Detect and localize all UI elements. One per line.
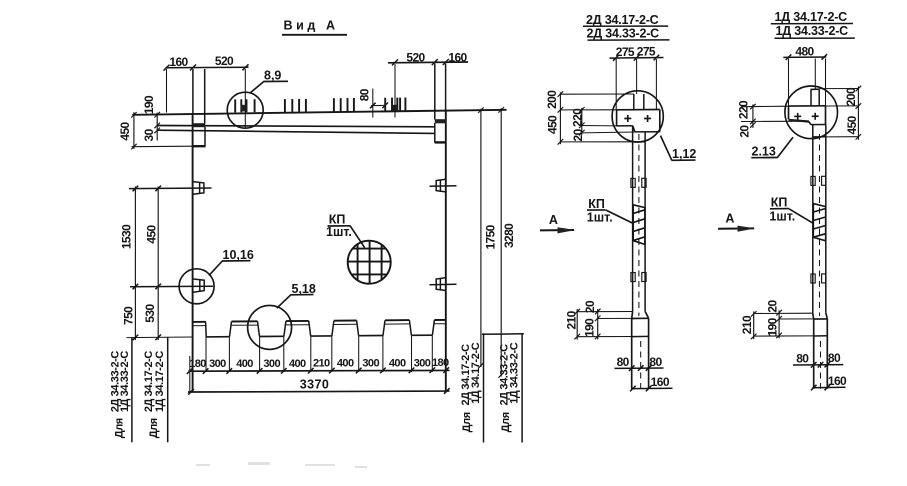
svg-text:80: 80 [617,355,630,369]
svg-text:200: 200 [844,87,858,106]
svg-text:3280: 3280 [502,223,516,248]
svg-text:160: 160 [448,50,467,64]
svg-text:180: 180 [189,358,206,370]
svg-text:80: 80 [828,351,841,365]
svg-text:20: 20 [583,300,597,313]
svg-text:300: 300 [414,357,431,369]
svg-text:480: 480 [795,45,814,59]
svg-text:160: 160 [651,375,670,389]
svg-text:Для: Для [500,412,512,432]
svg-text:220: 220 [571,108,585,127]
svg-text:190: 190 [766,317,780,336]
svg-text:А: А [725,211,734,225]
svg-text:520: 520 [215,54,234,68]
svg-text:3370: 3370 [300,378,329,392]
svg-text:275: 275 [637,45,656,59]
svg-text:2.13: 2.13 [752,145,776,159]
svg-text:1Д 34.17-2-С: 1Д 34.17-2-С [775,10,848,24]
svg-text:210: 210 [740,315,754,334]
svg-text:750: 750 [121,306,135,325]
svg-text:1Д 34.17-2-С: 1Д 34.17-2-С [470,342,482,404]
svg-text:300: 300 [362,358,379,370]
svg-text:80: 80 [796,351,809,365]
svg-text:300: 300 [263,358,280,370]
svg-text:200: 200 [545,90,559,109]
svg-text:1Д 34.33-2-С: 1Д 34.33-2-С [509,342,521,404]
svg-text:275: 275 [616,45,635,59]
svg-text:1530: 1530 [120,224,134,249]
svg-text:8,9: 8,9 [264,69,281,83]
svg-text:300: 300 [209,358,226,370]
svg-text:160: 160 [828,374,847,388]
svg-text:20: 20 [571,128,585,141]
svg-text:КП: КП [771,196,788,210]
svg-text:1,12: 1,12 [672,147,696,161]
svg-text:30: 30 [142,128,156,141]
svg-text:1750: 1750 [484,224,498,249]
svg-text:80: 80 [649,355,662,369]
svg-text:160: 160 [169,55,188,69]
svg-text:450: 450 [845,115,859,134]
svg-text:Для: Для [113,418,125,438]
svg-text:450: 450 [118,121,132,140]
svg-text:210: 210 [313,358,330,370]
svg-text:1шт.: 1шт. [769,209,795,223]
svg-text:2Д 34.17-2-С: 2Д 34.17-2-С [586,13,659,27]
svg-text:1Д 34.33-2-С: 1Д 34.33-2-С [776,24,849,38]
svg-text:400: 400 [236,358,253,370]
svg-text:400: 400 [337,358,354,370]
svg-text:1Д 34.17-2-С: 1Д 34.17-2-С [154,351,166,413]
svg-text:1шт.: 1шт. [326,225,352,239]
svg-text:190: 190 [142,95,156,114]
svg-text:180: 180 [432,357,449,369]
svg-text:220: 220 [736,100,750,119]
svg-text:20: 20 [766,300,780,313]
svg-text:2Д 34.33-2-С: 2Д 34.33-2-С [587,27,660,41]
svg-text:Для: Для [148,418,160,438]
svg-text:400: 400 [289,358,306,370]
svg-text:1шт.: 1шт. [587,211,613,225]
svg-text:Для: Для [461,412,473,432]
svg-text:80: 80 [358,88,372,101]
svg-text:530: 530 [143,304,157,323]
svg-text:А: А [549,213,558,227]
svg-text:1Д 34.33-2-С: 1Д 34.33-2-С [119,351,131,413]
svg-text:210: 210 [565,310,579,329]
svg-text:520: 520 [406,50,425,64]
svg-text:190: 190 [582,318,596,337]
svg-text:450: 450 [545,115,559,134]
svg-text:Вид А: Вид А [284,19,339,33]
svg-text:20: 20 [737,125,751,138]
svg-text:400: 400 [389,357,406,369]
svg-text:КП: КП [588,197,605,211]
svg-text:450: 450 [144,224,158,243]
